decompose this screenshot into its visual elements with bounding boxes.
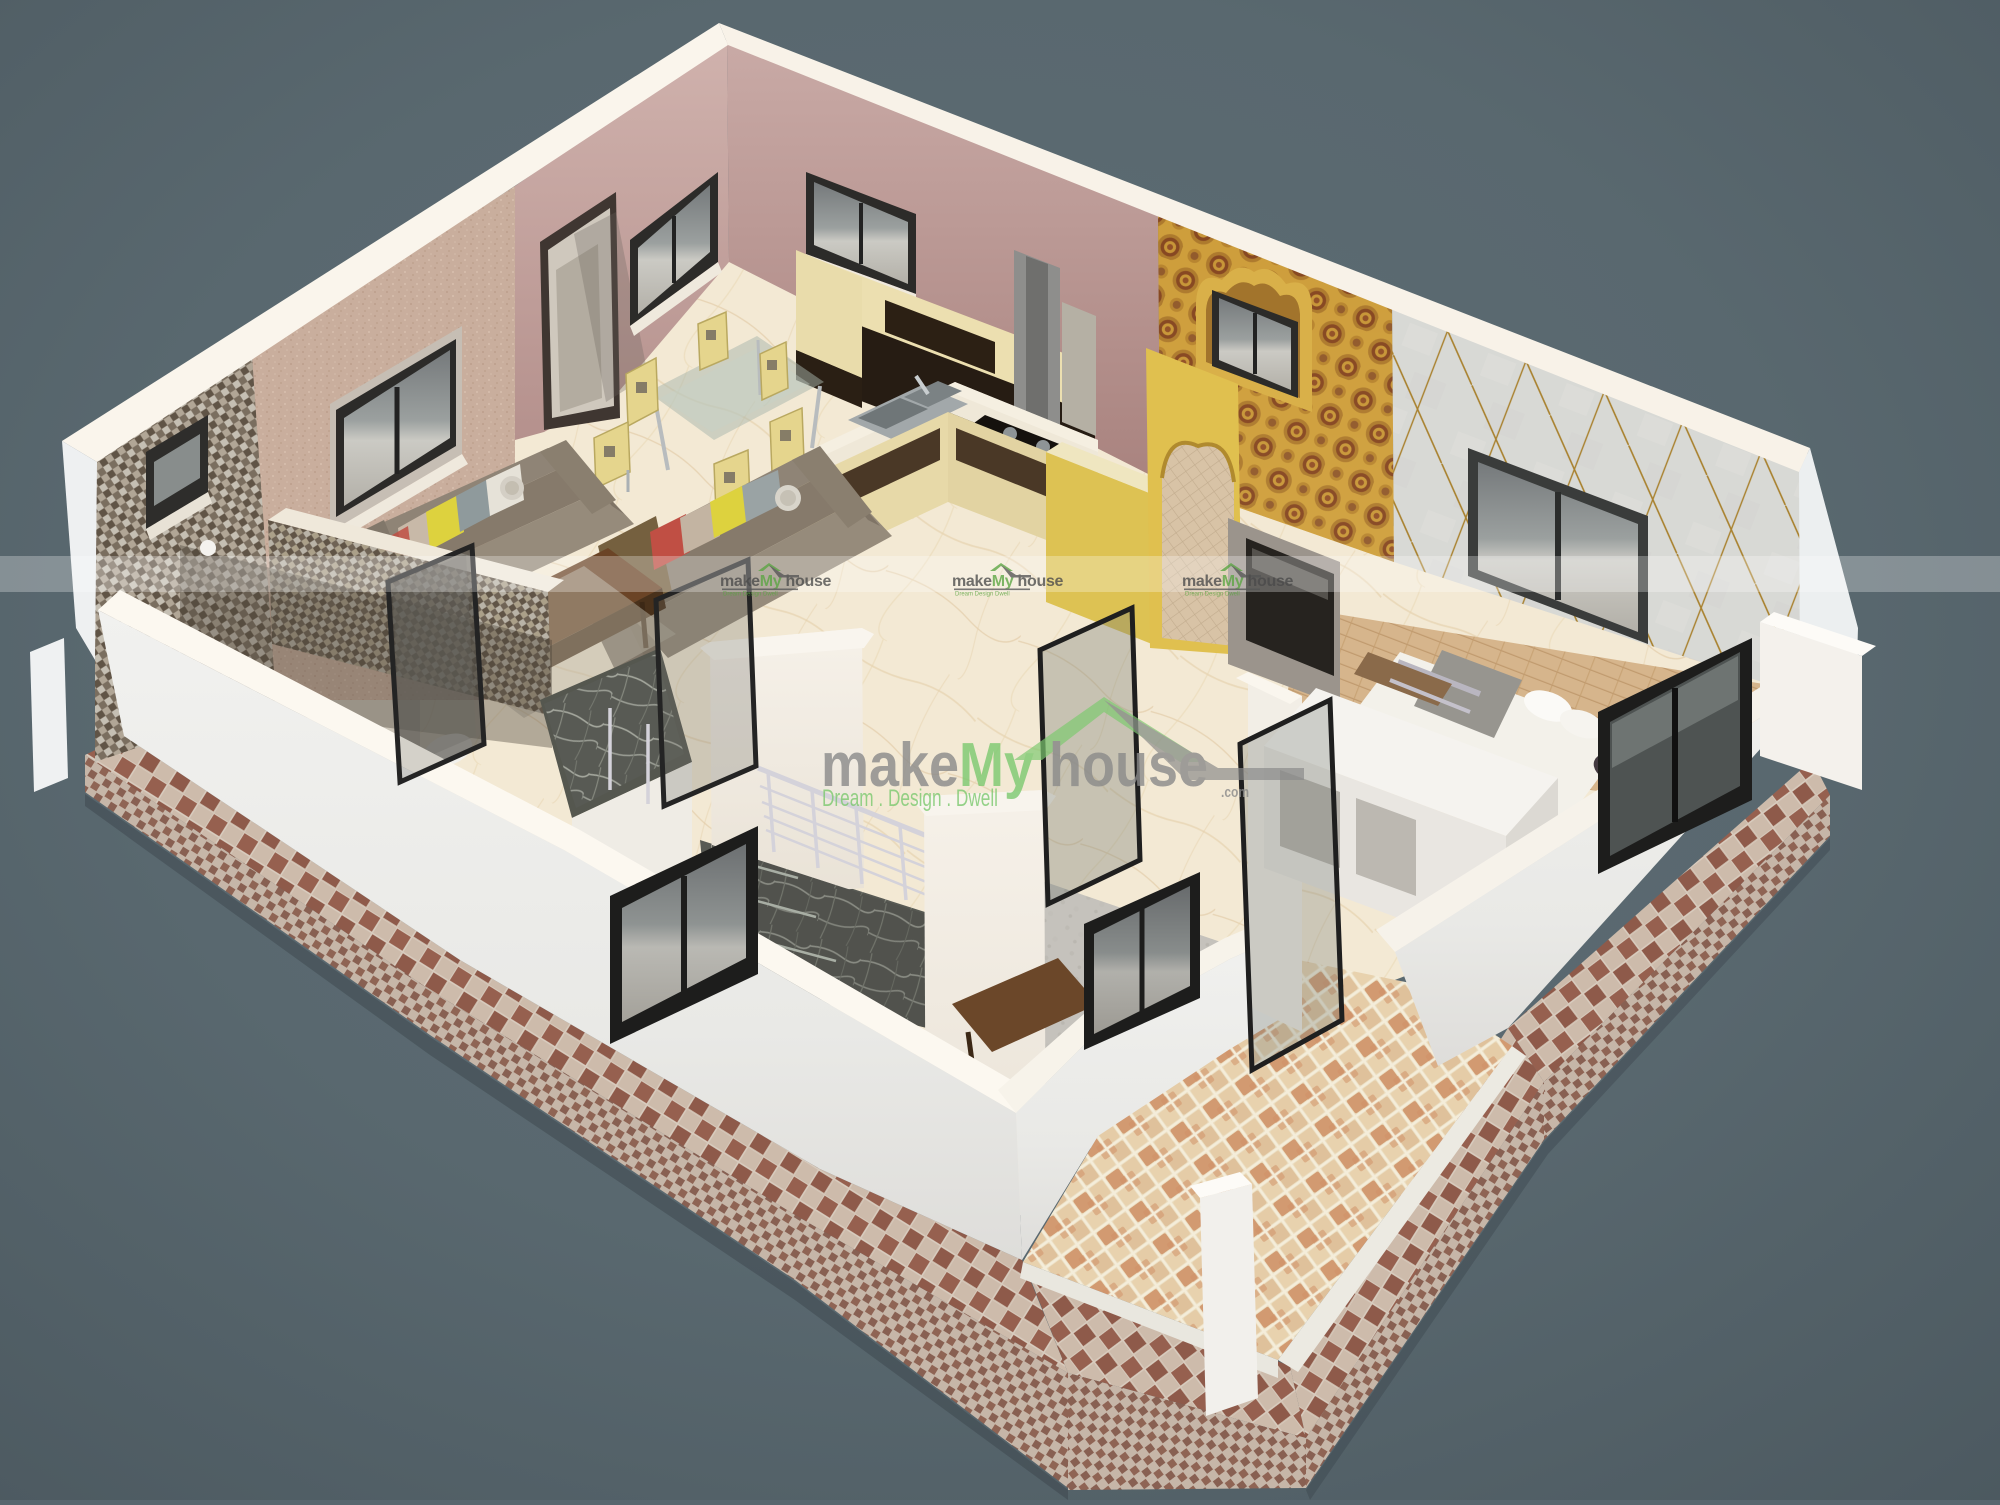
svg-text:.com: .com bbox=[1221, 784, 1249, 801]
svg-text:makeMy house: makeMy house bbox=[952, 573, 1064, 590]
svg-text:Dream Design Dwell: Dream Design Dwell bbox=[1185, 592, 1240, 598]
svg-text:Dream Design Dwell: Dream Design Dwell bbox=[955, 592, 1010, 598]
svg-text:makeMy house: makeMy house bbox=[720, 573, 832, 590]
svg-text:Dream Design Dwell: Dream Design Dwell bbox=[723, 592, 778, 598]
svg-text:Dream . Design . Dwell: Dream . Design . Dwell bbox=[822, 785, 998, 812]
svg-text:makeMy house: makeMy house bbox=[1182, 573, 1294, 590]
